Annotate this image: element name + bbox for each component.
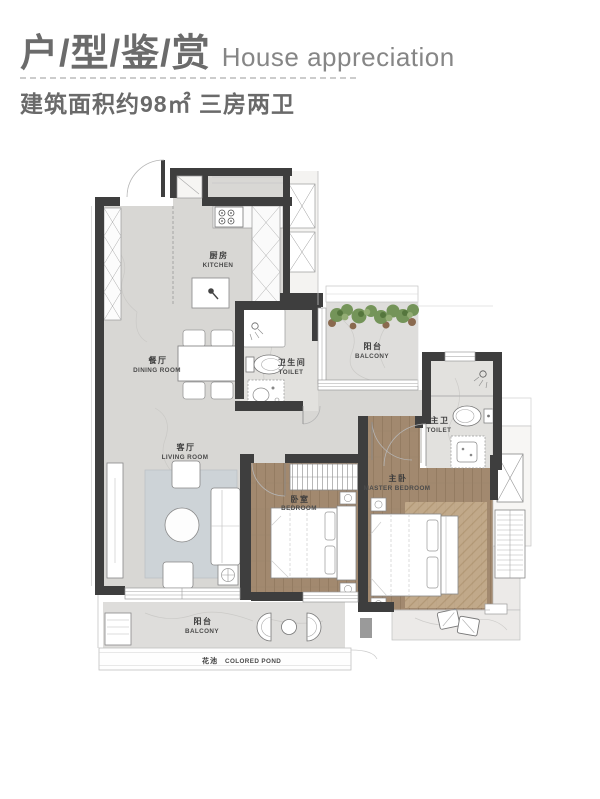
balcony-top-label-cn: 阳台 [364, 341, 383, 351]
area-subtitle: 建筑面积约98㎡ 三房两卫 [20, 85, 295, 119]
dining-room-label-en: DINING ROOM [133, 367, 181, 374]
entry-niche [177, 176, 202, 198]
shaft-boxes [289, 184, 315, 272]
balcony-top-label-en: BALCONY [355, 353, 389, 360]
living-room-label-en: LIVING ROOM [162, 454, 209, 461]
entry-door-leaf [161, 160, 165, 197]
dining-room-label-cn: 餐厅 [148, 355, 168, 365]
entry-door-arc [127, 160, 164, 197]
headboard [441, 516, 458, 594]
coffee-table [165, 508, 199, 542]
living-room-label-cn: 客厅 [176, 442, 196, 452]
armchair [163, 562, 193, 588]
balcony-bottom-label-en: BALCONY [185, 628, 219, 635]
page-title-cn: 户/型/鉴/赏 [20, 22, 211, 77]
balcony-bottom-label-cn: 阳台 [194, 616, 213, 626]
dashed-divider [20, 77, 356, 79]
armchair [172, 461, 200, 488]
toilet-label-cn: 卫生间 [278, 357, 307, 367]
page-title: 户/型/鉴/赏 House appreciation [20, 22, 455, 77]
balcony-cabinet [105, 613, 131, 645]
master-bedroom-furniture [371, 498, 487, 610]
master-toilet-label-cn: 主卫 [431, 415, 450, 425]
dining-table [178, 346, 238, 381]
toilet-label-en: TOILET [279, 369, 304, 376]
toilet-bowl [453, 406, 481, 426]
headboard [337, 506, 356, 580]
master-bedroom-label-en: MASTER BEDROOM [364, 485, 431, 492]
bedroom-label-cn: 卧室 [291, 494, 310, 504]
kitchen-label-cn: 厨房 [210, 250, 229, 260]
page-title-en: House appreciation [222, 42, 455, 73]
floor-plan: 厨房 KITCHEN 餐厅 DINING ROOM 卫生间 TOILET 阳台 … [85, 158, 537, 703]
entry-cabinets [104, 208, 121, 320]
stove [215, 207, 243, 227]
house-appreciation-page: 户/型/鉴/赏 House appreciation 建筑面积约98㎡ 三房两卫 [0, 0, 600, 799]
bedroom-label-en: BEDROOM [281, 505, 317, 512]
sofa [211, 488, 240, 565]
master-toilet-label-en: TOILET [427, 427, 452, 434]
pond-label-cn: 花池 [202, 656, 218, 665]
kitchen-label-en: KITCHEN [203, 262, 234, 269]
pond-label-en: COLORED POND [225, 658, 281, 665]
balcony-table [282, 620, 297, 635]
master-bedroom-label-cn: 主卧 [389, 473, 408, 483]
